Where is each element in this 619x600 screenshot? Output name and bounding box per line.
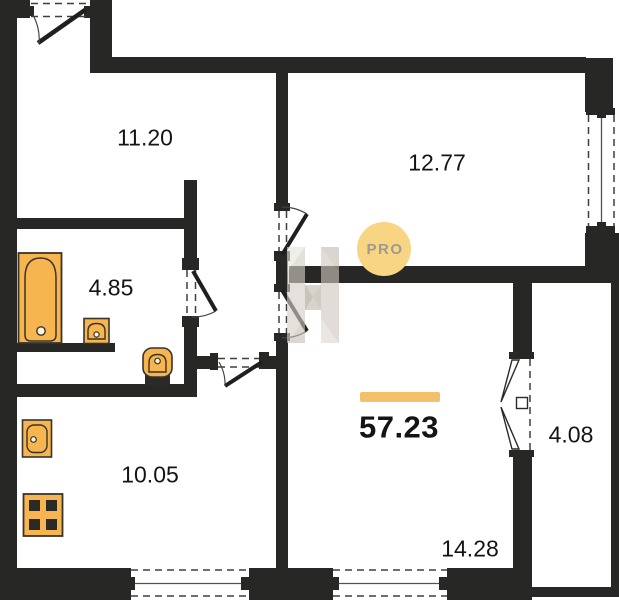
door-jamb (509, 352, 534, 359)
kitchen-sink-icon (23, 420, 52, 457)
wall-segment (0, 0, 17, 600)
door-leaf (501, 360, 519, 402)
bathroom-door (187, 270, 216, 317)
wall-segment (585, 58, 613, 112)
pro-badge: PRO (357, 222, 411, 276)
toilet-drain (155, 358, 161, 364)
door-jamb (182, 258, 199, 270)
stove-burner (29, 500, 40, 511)
door-leaf (38, 10, 85, 43)
kitchen-door (218, 359, 262, 387)
door-hinge (27, 6, 34, 16)
door-leaf (225, 362, 262, 386)
balcony-door (501, 359, 530, 450)
room-area-label-entry-hall: 11.20 (117, 127, 173, 150)
window-tick (439, 577, 447, 590)
room-area-label-kitchen: 10.05 (121, 464, 179, 487)
wall-segment (17, 343, 115, 352)
entrance-door (27, 4, 91, 45)
wall-segment (276, 73, 288, 203)
window-tick (127, 577, 135, 590)
wall-segment (447, 568, 520, 600)
washbasin-icon (84, 319, 109, 344)
door-swing-arc (33, 15, 39, 44)
washbasin-drain (94, 332, 99, 337)
bedroom-window (586, 108, 615, 233)
door-jamb (509, 450, 534, 457)
watermark-h-logo (287, 247, 339, 343)
total-area-label: 57.23 (359, 412, 439, 443)
door-leaf (501, 407, 519, 449)
wall-segment (17, 218, 197, 229)
room-area-label-living-room: 14.28 (441, 538, 499, 561)
wall-segment (0, 0, 30, 18)
room-area-label-bedroom: 12.77 (408, 152, 466, 175)
kitchen-window (127, 570, 249, 596)
wall-segment (611, 283, 619, 597)
wall-segment (249, 568, 333, 600)
window-tick (241, 577, 249, 590)
door-swing-arc (219, 362, 225, 386)
wall-segment (267, 356, 278, 369)
wall-segment (90, 57, 586, 73)
wall-segment (530, 587, 619, 597)
floorplan-page: PRO 11.20 12.77 4.85 10.05 14.28 4.08 57… (0, 0, 619, 600)
door-leaf (193, 271, 216, 311)
wall-segment (513, 457, 532, 600)
stove-burner (46, 500, 57, 511)
wall-segment (513, 266, 532, 352)
toilet-icon (143, 348, 172, 387)
window-tick (597, 111, 606, 118)
sink-drain (31, 437, 37, 443)
door-jamb (182, 316, 199, 327)
room-area-label-bathroom: 4.85 (89, 277, 134, 300)
door-handle (517, 398, 528, 409)
window-tick (331, 577, 339, 590)
wall-segment (276, 341, 288, 568)
stove-burner (46, 519, 57, 530)
bathtub-icon (19, 253, 62, 343)
wall-segment (184, 327, 197, 384)
stove-burner (29, 519, 40, 530)
stove-icon (24, 494, 63, 536)
living-room-window (331, 570, 447, 596)
wall-segment (0, 568, 131, 600)
door-jamb (210, 353, 218, 370)
total-area-accent-bar (360, 392, 440, 402)
window-tick (597, 222, 606, 229)
bathtub-drain (37, 327, 45, 335)
room-area-label-balcony: 4.08 (549, 424, 594, 447)
